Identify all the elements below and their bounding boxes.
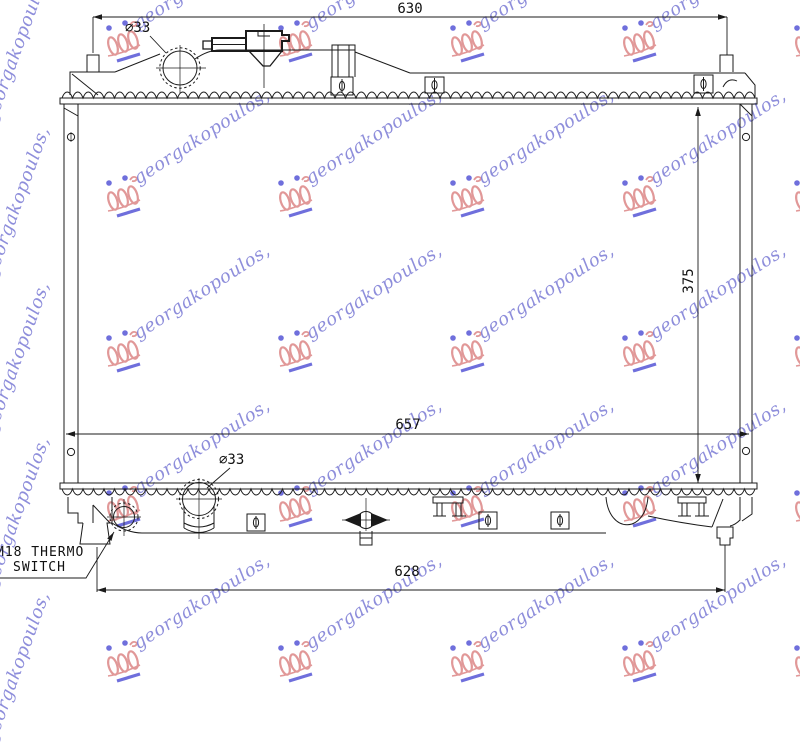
mount-pin-top-left — [87, 55, 99, 72]
side-plate-right — [740, 104, 752, 483]
dim-bottom-width-label: 628 — [389, 565, 425, 579]
bracket-bottom-2 — [678, 497, 709, 516]
georgakopoulos-logo-stamp — [791, 639, 800, 685]
bracket-bottom-1 — [433, 497, 466, 516]
dim-core-width-label: 657 — [390, 418, 426, 432]
outlet-stub — [717, 527, 733, 545]
filler-diameter-top-label: ⌀33 — [125, 21, 150, 35]
core-fins-bottom — [62, 489, 755, 495]
top-tank — [70, 24, 755, 97]
mount-pin-top-right — [720, 55, 733, 72]
filler-neck-bottom — [176, 478, 222, 539]
filler-cap-assembly — [203, 24, 289, 88]
filler-diameter-bottom-label: ⌀33 — [219, 453, 244, 467]
radiator-technical-drawing — [0, 0, 800, 641]
bottom-tank — [68, 478, 752, 545]
georgakopoulos-logo-stamp — [103, 639, 145, 685]
thermo-switch-note-line2: SWITCH — [13, 561, 66, 575]
georgakopoulos-logo-stamp — [275, 639, 317, 685]
side-plate-left — [64, 104, 78, 483]
dim-top-width-label: 630 — [393, 2, 427, 16]
thermo-switch-note-line1: M18 THERMO — [0, 546, 84, 560]
drain-petcock — [342, 498, 390, 545]
radiator-drawing-page: { "drawing": { "type": "radiator-technic… — [0, 0, 800, 641]
georgakopoulos-logo-stamp — [447, 639, 489, 685]
dim-core-height-label: 375 — [682, 264, 696, 298]
core-fins-top — [62, 92, 755, 98]
georgakopoulos-logo-stamp — [619, 639, 661, 685]
hose-recess — [606, 497, 648, 525]
